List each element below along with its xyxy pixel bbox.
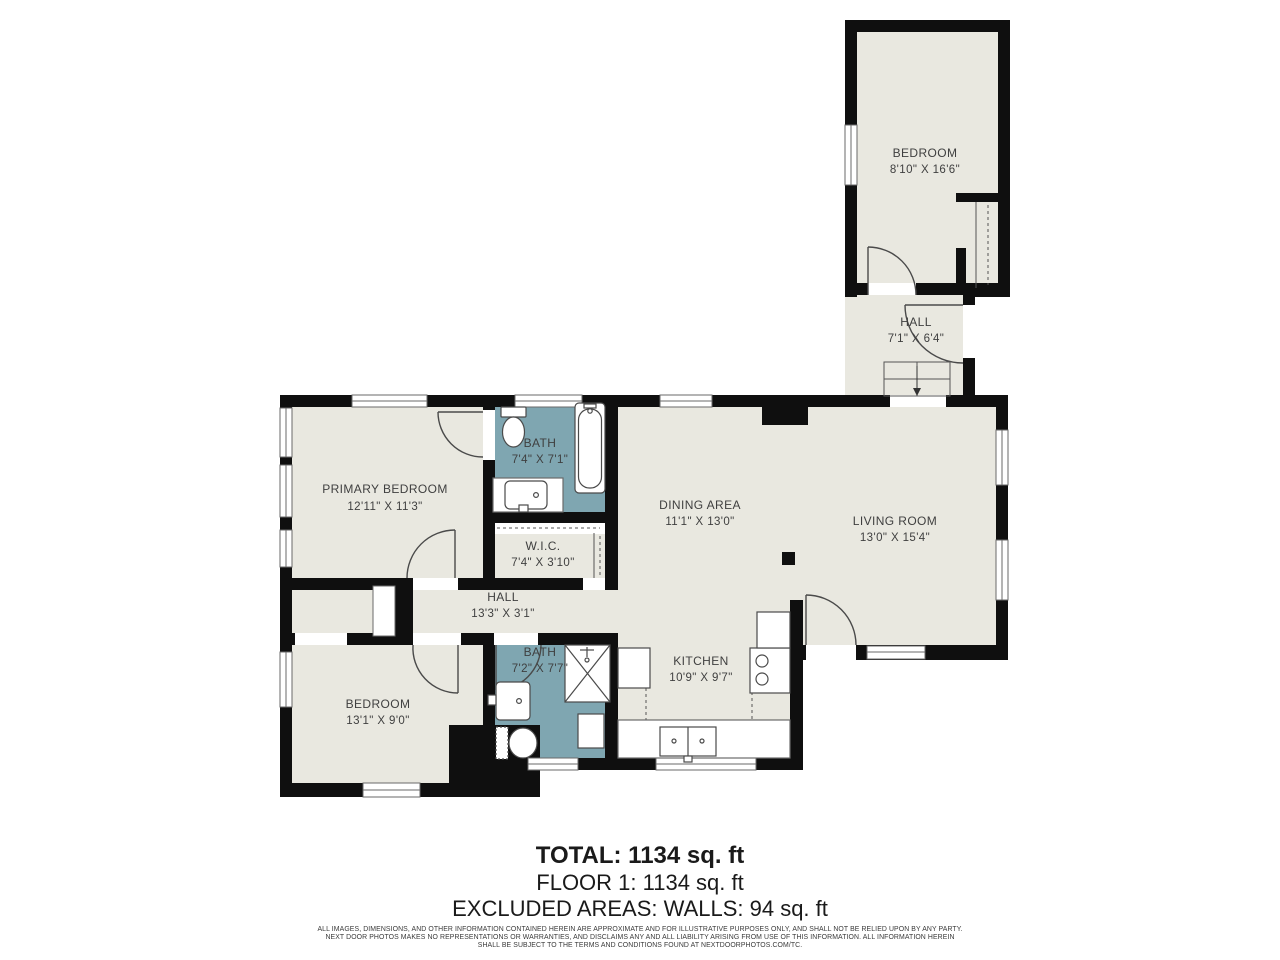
bath-cabinet xyxy=(578,714,604,748)
disclaimer-text: ALL IMAGES, DIMENSIONS, AND OTHER INFORM… xyxy=(0,926,1280,951)
room-dims-primary-bedroom: 12'11" X 11'3" xyxy=(347,501,422,513)
room-label-bath-upper: BATH xyxy=(524,436,557,450)
floor-plan-page: BEDROOM 8'10" X 16'6" HALL 7'1" X 6'4" P… xyxy=(0,0,1280,960)
window-icon xyxy=(363,783,420,797)
room-dims-kitchen: 10'9" X 9'7" xyxy=(669,672,732,684)
window-icon xyxy=(845,125,857,185)
summary-footer: TOTAL: 1134 sq. ft FLOOR 1: 1134 sq. ft … xyxy=(0,841,1280,951)
floor-plan-canvas: BEDROOM 8'10" X 16'6" HALL 7'1" X 6'4" P… xyxy=(0,0,1280,960)
bathtub-icon xyxy=(575,403,605,493)
room-label-living-room: LIVING ROOM xyxy=(853,514,937,528)
window-icon xyxy=(280,652,292,707)
dishwasher-icon xyxy=(618,648,650,688)
window-icon xyxy=(515,395,582,407)
room-dims-bedroom-lower: 13'1" X 9'0" xyxy=(346,715,409,727)
window-icon xyxy=(528,758,578,770)
toilet-icon xyxy=(496,727,537,759)
room-dims-wic: 7'4" X 3'10" xyxy=(511,557,574,569)
window-icon xyxy=(352,395,427,407)
excluded-area-text: EXCLUDED AREAS: WALLS: 94 sq. ft xyxy=(0,896,1280,922)
stove-icon xyxy=(750,648,790,693)
sink-icon xyxy=(493,478,563,512)
room-label-bedroom-lower: BEDROOM xyxy=(346,697,411,711)
room-dims-living-room: 13'0" X 15'4" xyxy=(860,532,930,544)
room-label-primary-bedroom: PRIMARY BEDROOM xyxy=(322,482,448,496)
window-icon xyxy=(996,540,1008,600)
window-icon xyxy=(867,646,925,659)
room-label-bath-lower: BATH xyxy=(524,645,557,659)
room-label-kitchen: KITCHEN xyxy=(673,654,728,668)
room-label-dining-area: DINING AREA xyxy=(659,498,741,512)
disclaimer-line-2: NEXT DOOR PHOTOS MAKES NO REPRESENTATION… xyxy=(0,934,1280,942)
disclaimer-line-3: SHALL BE SUBJECT TO THE TERMS AND CONDIT… xyxy=(0,942,1280,950)
toilet-icon xyxy=(501,407,526,447)
window-icon xyxy=(280,465,292,517)
room-label-bedroom-upper: BEDROOM xyxy=(893,146,958,160)
total-area-text: TOTAL: 1134 sq. ft xyxy=(0,841,1280,870)
door-slab xyxy=(373,586,395,636)
disclaimer-line-1: ALL IMAGES, DIMENSIONS, AND OTHER INFORM… xyxy=(0,926,1280,934)
room-bedroom-upper-floor xyxy=(845,20,1010,407)
room-label-wic: W.I.C. xyxy=(525,539,560,553)
room-dims-bath-upper: 7'4" X 7'1" xyxy=(512,454,569,466)
window-icon xyxy=(656,758,756,770)
room-dims-hall-upper: 7'1" X 6'4" xyxy=(888,333,945,345)
room-dims-dining-area: 11'1" X 13'0" xyxy=(665,516,734,528)
refrigerator-icon xyxy=(757,612,790,648)
shower-icon xyxy=(565,645,610,702)
room-dims-bath-lower: 7'2" X 7'7" xyxy=(512,663,569,675)
window-icon xyxy=(280,408,292,457)
window-icon xyxy=(996,430,1008,485)
room-dims-hall-main: 13'3" X 3'1" xyxy=(471,608,534,620)
room-dims-bedroom-upper: 8'10" X 16'6" xyxy=(890,164,960,176)
room-label-hall-upper: HALL xyxy=(900,315,932,329)
floor1-area-text: FLOOR 1: 1134 sq. ft xyxy=(0,870,1280,896)
room-label-hall-main: HALL xyxy=(487,590,519,604)
window-icon xyxy=(660,395,712,407)
window-icon xyxy=(280,530,292,567)
